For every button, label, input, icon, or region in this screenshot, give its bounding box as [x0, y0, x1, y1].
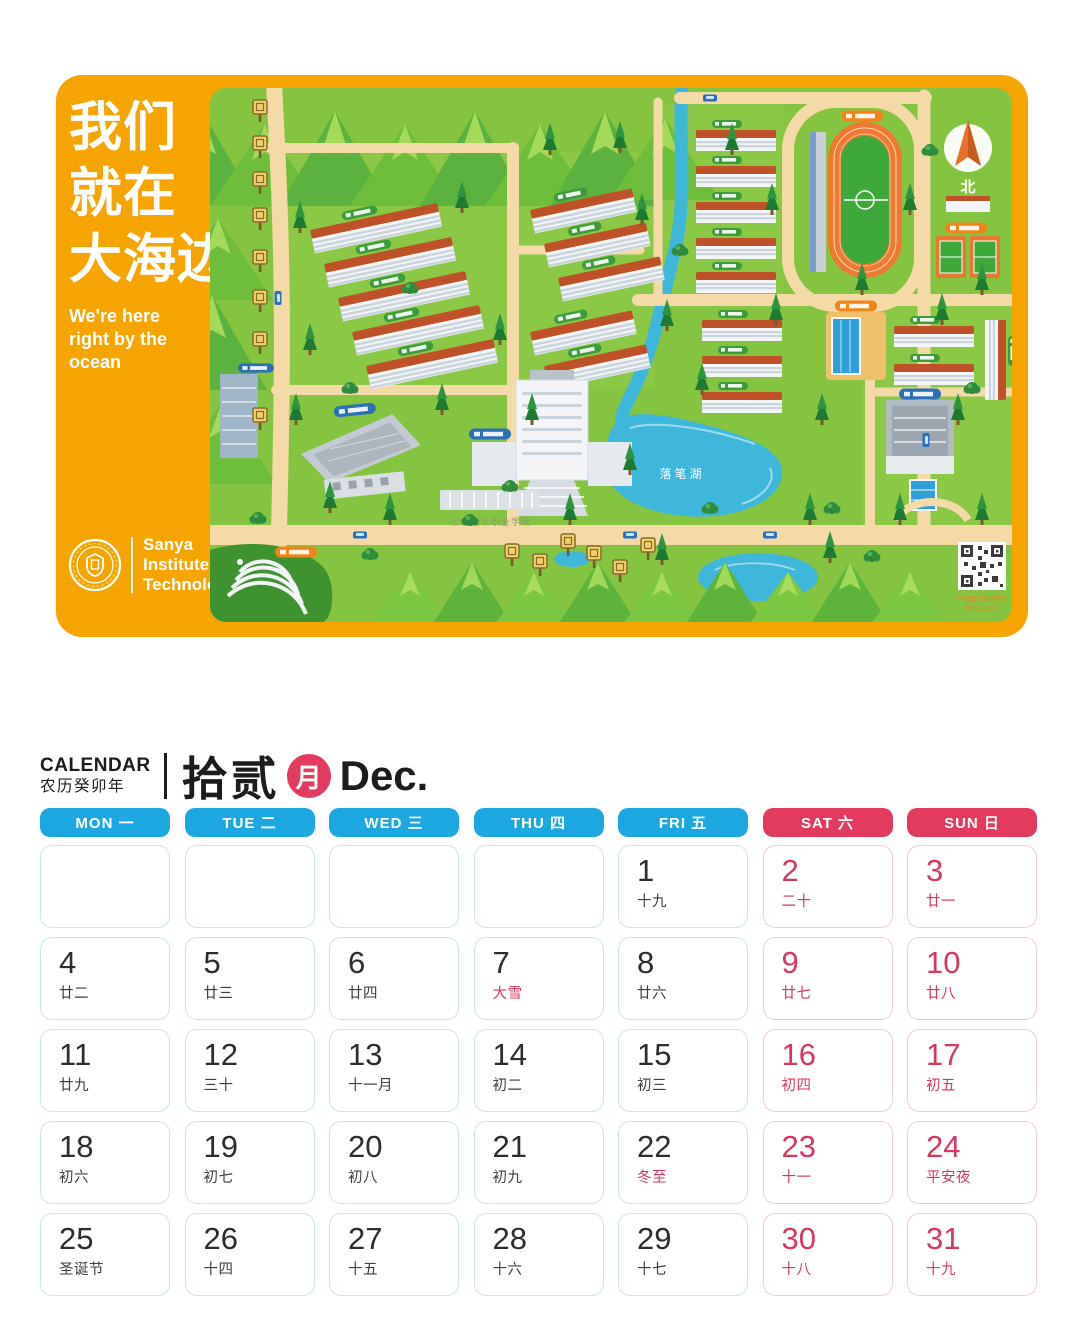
- lunar-label: 廿四: [348, 982, 452, 1003]
- north-label: 北: [960, 179, 975, 196]
- slogan-line-2: 就在: [69, 161, 219, 227]
- weekday-row: MON 一TUE 二WED 三THU 四FRI 五SAT 六SUN 日: [40, 808, 1037, 837]
- day-cell-13: 13十一月: [329, 1029, 459, 1112]
- day-number: 26: [204, 1221, 308, 1256]
- day-cell-26: 26十四: [185, 1213, 315, 1296]
- month-name-cn: 拾贰: [182, 743, 280, 809]
- day-cell-empty: [185, 845, 315, 928]
- weekday-header: THU 四: [474, 808, 604, 837]
- weekday-header: WED 三: [329, 808, 459, 837]
- stadium: [810, 111, 902, 279]
- day-cell-empty: [329, 845, 459, 928]
- day-number: 22: [637, 1129, 741, 1164]
- day-cell-21: 21初九: [474, 1121, 604, 1204]
- day-number: 9: [782, 945, 886, 980]
- day-cell-15: 15初三: [618, 1029, 748, 1112]
- lunar-label: 初四: [782, 1074, 886, 1095]
- lunar-label: 冬至: [637, 1166, 741, 1187]
- day-cell-19: 19初七: [185, 1121, 315, 1204]
- day-cell-11: 11廿九: [40, 1029, 170, 1112]
- weekday-header: SUN 日: [907, 808, 1037, 837]
- day-number: 4: [59, 945, 163, 980]
- amphitheater: [210, 544, 332, 622]
- lunar-label: 廿一: [926, 890, 1030, 911]
- lunar-label: 廿六: [637, 982, 741, 1003]
- calendar-grid: 1十九2二十3廿一4廿二5廿三6廿四7大雪8廿六9廿七10廿八11廿九12三十1…: [40, 845, 1037, 1296]
- lunar-label: 十九: [637, 890, 741, 911]
- lunar-label: 十四: [204, 1258, 308, 1279]
- day-number: 15: [637, 1037, 741, 1072]
- lunar-label: 初九: [493, 1166, 597, 1187]
- campus-map-illustration: 三亚理工职业学院: [210, 88, 1012, 622]
- slogan-en-line-1: We're here: [69, 305, 219, 328]
- day-number: 12: [204, 1037, 308, 1072]
- lunar-label: 十六: [493, 1258, 597, 1279]
- day-cell-8: 8廿六: [618, 937, 748, 1020]
- day-number: 7: [493, 945, 597, 980]
- calendar-title-block: CALENDAR 农历癸卯年: [40, 755, 151, 797]
- slogan-en-line-2: right by the ocean: [69, 328, 219, 374]
- day-number: 16: [782, 1037, 886, 1072]
- day-number: 5: [204, 945, 308, 980]
- day-number: 28: [493, 1221, 597, 1256]
- day-number: 21: [493, 1129, 597, 1164]
- month-badge: 月: [287, 754, 331, 798]
- day-cell-4: 4廿二: [40, 937, 170, 1020]
- weekday-header: MON 一: [40, 808, 170, 837]
- day-cell-14: 14初二: [474, 1029, 604, 1112]
- header-divider: [164, 753, 167, 799]
- qr-code: 三亚理工职业学院 微信公众号: [956, 542, 1009, 612]
- day-cell-30: 30十八: [763, 1213, 893, 1296]
- calendar-title-cn: 农历癸卯年: [40, 777, 151, 797]
- lunar-label: 十一月: [348, 1074, 452, 1095]
- lunar-label: 三十: [204, 1074, 308, 1095]
- day-cell-3: 3廿一: [907, 845, 1037, 928]
- lunar-label: 初二: [493, 1074, 597, 1095]
- lunar-label: 十一: [782, 1166, 886, 1187]
- lunar-label: 十五: [348, 1258, 452, 1279]
- qr-caption-line-1: 三亚理工职业学院: [956, 594, 1009, 603]
- weekday-header: FRI 五: [618, 808, 748, 837]
- day-number: 24: [926, 1129, 1030, 1164]
- day-cell-empty: [40, 845, 170, 928]
- lunar-label: 大雪: [493, 982, 597, 1003]
- lunar-label: 十八: [782, 1258, 886, 1279]
- day-number: 8: [637, 945, 741, 980]
- day-cell-2: 2二十: [763, 845, 893, 928]
- day-cell-20: 20初八: [329, 1121, 459, 1204]
- day-cell-empty: [474, 845, 604, 928]
- lunar-label: 初八: [348, 1166, 452, 1187]
- calendar-header: CALENDAR 农历癸卯年 拾贰 月 Dec.: [40, 743, 428, 809]
- slogan: 我们 就在 大海边 We're here right by the ocean: [69, 95, 219, 374]
- lunar-label: 初三: [637, 1074, 741, 1095]
- day-number: 10: [926, 945, 1030, 980]
- lunar-label: 平安夜: [926, 1166, 1030, 1187]
- lunar-label: 廿九: [59, 1074, 163, 1095]
- day-number: 1: [637, 853, 741, 888]
- day-cell-5: 5廿三: [185, 937, 315, 1020]
- day-number: 27: [348, 1221, 452, 1256]
- lunar-label: 初五: [926, 1074, 1030, 1095]
- day-cell-24: 24平安夜: [907, 1121, 1037, 1204]
- day-number: 29: [637, 1221, 741, 1256]
- day-number: 19: [204, 1129, 308, 1164]
- campus-map-card: 我们 就在 大海边 We're here right by the ocean …: [56, 75, 1028, 637]
- slogan-line-3: 大海边: [69, 227, 219, 293]
- lunar-label: 初七: [204, 1166, 308, 1187]
- lunar-label: 十九: [926, 1258, 1030, 1279]
- lunar-label: 廿三: [204, 982, 308, 1003]
- day-cell-18: 18初六: [40, 1121, 170, 1204]
- day-number: 18: [59, 1129, 163, 1164]
- day-cell-29: 29十七: [618, 1213, 748, 1296]
- day-number: 3: [926, 853, 1030, 888]
- day-cell-12: 12三十: [185, 1029, 315, 1112]
- slogan-line-1: 我们: [69, 95, 219, 161]
- weekday-header: SAT 六: [763, 808, 893, 837]
- day-cell-22: 22冬至: [618, 1121, 748, 1204]
- day-number: 11: [59, 1037, 163, 1072]
- day-number: 30: [782, 1221, 886, 1256]
- day-cell-25: 25圣诞节: [40, 1213, 170, 1296]
- day-cell-17: 17初五: [907, 1029, 1037, 1112]
- lunar-label: 初六: [59, 1166, 163, 1187]
- day-number: 13: [348, 1037, 452, 1072]
- campus-map-svg: 三亚理工职业学院: [210, 88, 1012, 622]
- day-cell-23: 23十一: [763, 1121, 893, 1204]
- day-cell-16: 16初四: [763, 1029, 893, 1112]
- lunar-label: 廿二: [59, 982, 163, 1003]
- parking-lot: 三亚理工职业学院: [440, 490, 540, 527]
- day-cell-9: 9廿七: [763, 937, 893, 1020]
- lunar-label: 廿八: [926, 982, 1030, 1003]
- day-number: 23: [782, 1129, 886, 1164]
- day-cell-27: 27十五: [329, 1213, 459, 1296]
- month-abbr: Dec.: [340, 752, 429, 800]
- lunar-label: 十七: [637, 1258, 741, 1279]
- day-cell-7: 7大雪: [474, 937, 604, 1020]
- logo-divider: [131, 537, 133, 593]
- swimming-pool: [826, 301, 886, 381]
- qr-caption-line-2: 微信公众号: [966, 603, 999, 612]
- day-number: 31: [926, 1221, 1030, 1256]
- lunar-label: 廿七: [782, 982, 886, 1003]
- day-cell-6: 6廿四: [329, 937, 459, 1020]
- day-cell-10: 10廿八: [907, 937, 1037, 1020]
- day-number: 2: [782, 853, 886, 888]
- school-seal-icon: [68, 538, 122, 592]
- lunar-label: 圣诞节: [59, 1258, 163, 1279]
- day-cell-28: 28十六: [474, 1213, 604, 1296]
- day-number: 20: [348, 1129, 452, 1164]
- day-number: 25: [59, 1221, 163, 1256]
- calendar-title-en: CALENDAR: [40, 755, 151, 777]
- lunar-label: 二十: [782, 890, 886, 911]
- lake-label: 落笔湖: [659, 466, 704, 481]
- day-number: 6: [348, 945, 452, 980]
- day-cell-31: 31十九: [907, 1213, 1037, 1296]
- day-cell-1: 1十九: [618, 845, 748, 928]
- day-number: 17: [926, 1037, 1030, 1072]
- day-number: 14: [493, 1037, 597, 1072]
- weekday-header: TUE 二: [185, 808, 315, 837]
